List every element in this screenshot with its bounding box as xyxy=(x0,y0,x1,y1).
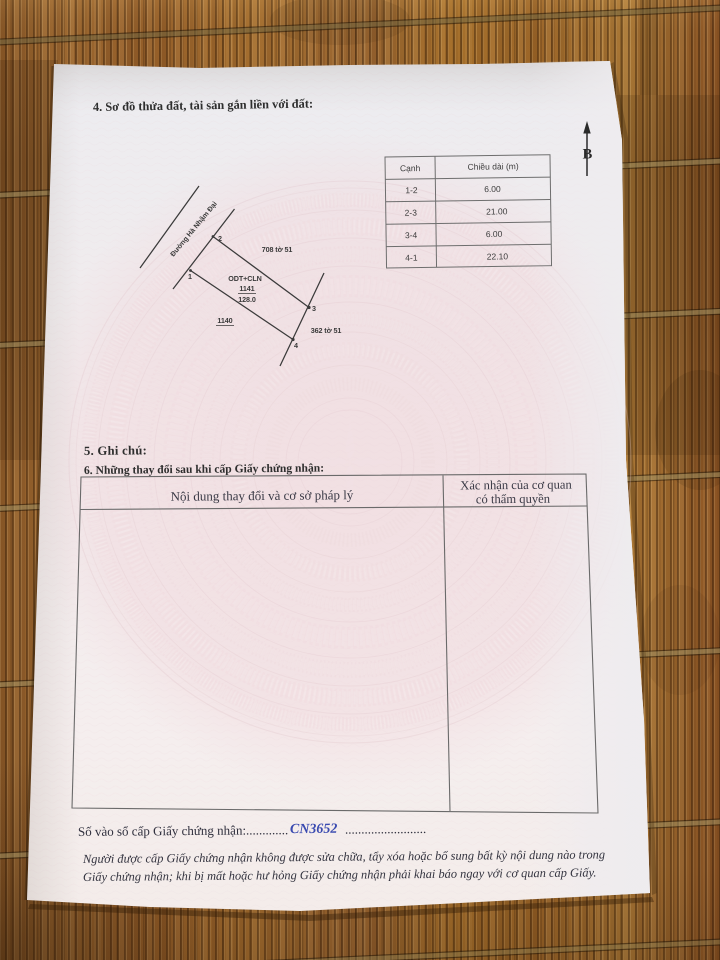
svg-text:708 tờ 51: 708 tờ 51 xyxy=(262,245,293,254)
svg-text:Xác nhận của cơ quan: Xác nhận của cơ quan xyxy=(460,478,572,493)
svg-text:CN3652: CN3652 xyxy=(290,822,338,837)
svg-text:2: 2 xyxy=(218,234,222,243)
svg-text:1141: 1141 xyxy=(239,284,254,293)
svg-text:Cạnh: Cạnh xyxy=(400,163,421,173)
svg-text:có thẩm quyền: có thẩm quyền xyxy=(476,492,551,507)
svg-text:5. Ghi chú:: 5. Ghi chú: xyxy=(84,443,147,458)
svg-text:4: 4 xyxy=(294,341,298,350)
svg-text:Chiều dài (m): Chiều dài (m) xyxy=(468,161,519,172)
svg-text:1140: 1140 xyxy=(217,316,232,325)
svg-text:2-3: 2-3 xyxy=(405,208,418,218)
svg-text:3: 3 xyxy=(312,304,316,313)
svg-text:B: B xyxy=(583,147,593,163)
svg-text:6. Những thay đổi sau khi cấp: 6. Những thay đổi sau khi cấp Giấy chứng… xyxy=(84,461,324,477)
svg-text:6.00: 6.00 xyxy=(484,184,501,194)
svg-text:Nội dung thay đổi và cơ sở phá: Nội dung thay đổi và cơ sở pháp lý xyxy=(171,487,354,504)
svg-text:128.0: 128.0 xyxy=(238,295,256,304)
svg-text:1: 1 xyxy=(188,272,192,281)
svg-text:4-1: 4-1 xyxy=(405,253,418,263)
svg-text:Số vào sổ cấp Giấy chứng nhận:: Số vào sổ cấp Giấy chứng nhận:..........… xyxy=(78,822,288,839)
svg-text:21.00: 21.00 xyxy=(486,206,508,216)
svg-text:3-4: 3-4 xyxy=(405,230,418,240)
svg-text:.........................: ......................... xyxy=(345,821,426,837)
svg-text:362 tờ 51: 362 tờ 51 xyxy=(311,326,342,335)
svg-text:ODT+CLN: ODT+CLN xyxy=(228,274,261,283)
svg-text:6.00: 6.00 xyxy=(486,229,503,239)
svg-text:22.10: 22.10 xyxy=(487,251,509,261)
svg-text:1-2: 1-2 xyxy=(405,185,418,195)
